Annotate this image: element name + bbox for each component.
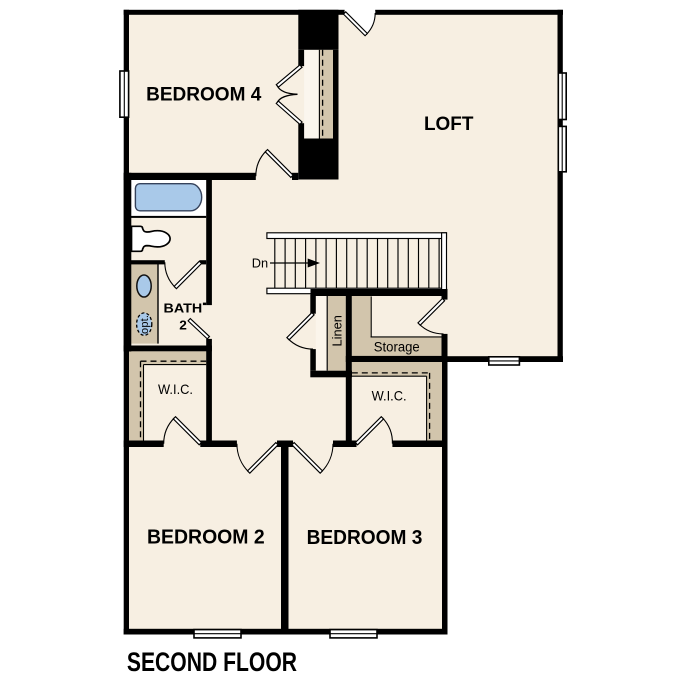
svg-text:BEDROOM 4: BEDROOM 4	[146, 83, 261, 105]
svg-text:BEDROOM 2: BEDROOM 2	[147, 525, 265, 548]
svg-text:BATH: BATH	[164, 300, 203, 315]
svg-text:LOFT: LOFT	[424, 113, 473, 135]
svg-text:W.I.C.: W.I.C.	[372, 388, 407, 404]
svg-text:W.I.C.: W.I.C.	[158, 381, 193, 397]
svg-text:SECOND FLOOR: SECOND FLOOR	[127, 647, 297, 677]
svg-text:Dn: Dn	[252, 257, 268, 271]
svg-text:Linen: Linen	[330, 315, 345, 346]
svg-text:BEDROOM 3: BEDROOM 3	[307, 526, 423, 549]
svg-text:Storage: Storage	[374, 339, 420, 354]
svg-text:opt.: opt.	[139, 315, 151, 334]
svg-text:2: 2	[179, 318, 187, 333]
